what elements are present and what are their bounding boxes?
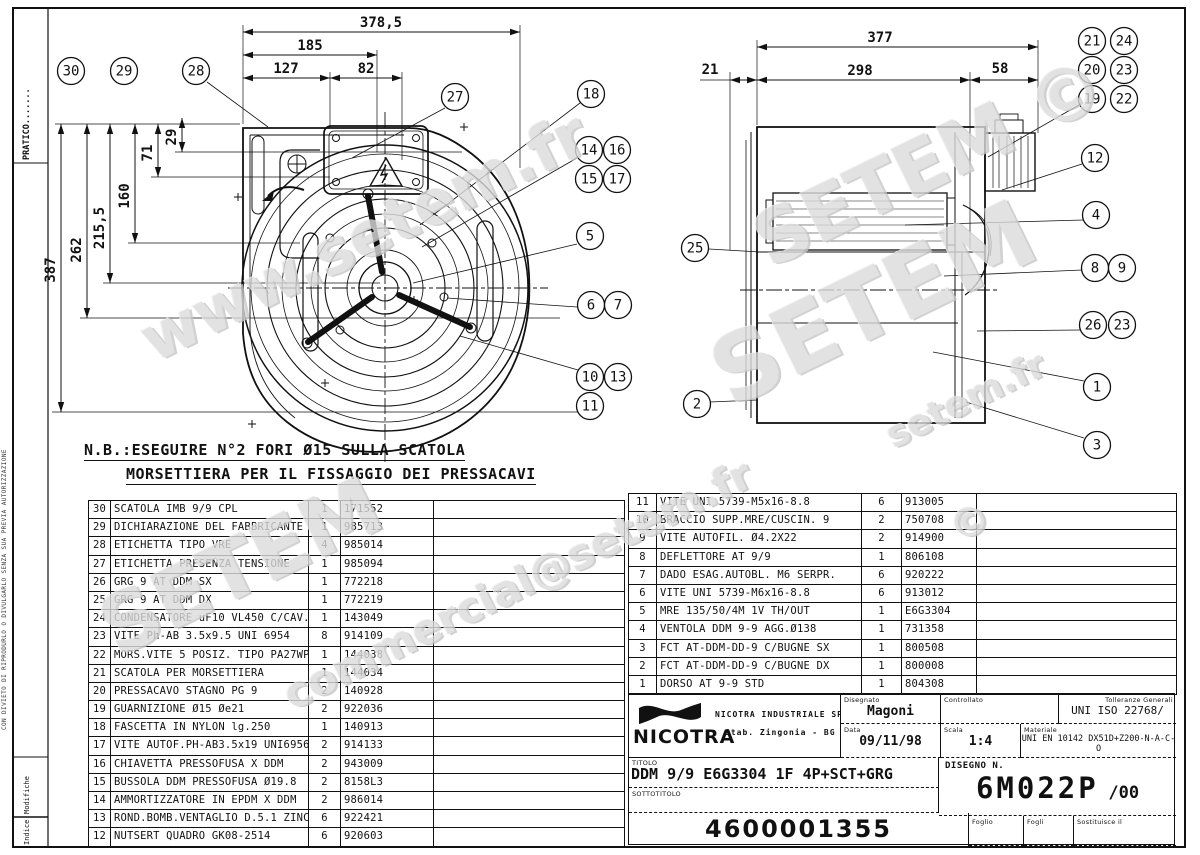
indice-label: Indice [23,820,31,845]
part-code-cell: 772218 [341,574,434,591]
part-notes-cell [434,610,624,627]
part-number-cell: 12 [89,828,111,846]
part-notes-cell [977,567,1176,584]
part-qty-cell: 2 [309,701,341,718]
part-notes-cell [977,549,1176,566]
part-code-cell: 772219 [341,592,434,609]
part-code-cell: 800008 [902,658,977,675]
table-row: 11 VITE UNI 5739-M5x16-8.8 6 913005 [629,494,1176,512]
part-number-cell: 18 [89,719,111,736]
part-notes-cell [977,658,1176,675]
table-row: 28 ETICHETTA TIPO VRE 4 985014 [89,537,624,555]
part-description-cell: ETICHETTA PRESENZA TENSIONE [111,556,309,573]
balloon-19: 19 [1084,92,1101,108]
part-notes-cell [434,519,624,536]
part-qty-cell: 1 [862,658,902,675]
part-notes-cell [434,501,624,518]
part-notes-cell [977,603,1176,620]
part-code-cell: 8158L3 [341,774,434,791]
terminal-box [324,126,428,194]
materiale-cell: Materiale UNI EN 10142 DX51D+Z200-N-A-C-… [1021,724,1176,758]
part-number-cell: 5 [629,603,657,620]
part-number-cell: 25 [89,592,111,609]
part-number-cell: 28 [89,537,111,554]
part-notes-cell [434,683,624,700]
dim-377: 377 [867,30,892,46]
part-qty-cell: 1 [309,647,341,664]
balloon-6: 6 [587,298,595,314]
part-code-cell: 143049 [341,610,434,627]
table-row: 22 MORS.VITE 5 POSIZ. TIPO PA27WP 1 1440… [89,647,624,665]
table-row: 27 ETICHETTA PRESENZA TENSIONE 1 985094 [89,556,624,574]
balloon-29: 29 [116,64,133,80]
part-number-cell: 26 [89,574,111,591]
part-code-cell: 920603 [341,828,434,846]
note-line-1: N.B.:ESEGUIRE N°2 FORI Ø15 SULLA SCATOLA [84,441,465,461]
balloon-10: 10 [582,370,599,386]
part-description-cell: FCT AT-DDM-DD-9 C/BUGNE SX [657,640,862,657]
disegno-value: 6M022P [976,771,1099,805]
disegnato-label: Disegnato [841,694,940,704]
part-code-cell: 985713 [341,519,434,536]
part-notes-cell [977,585,1176,602]
balloon-15: 15 [581,172,598,188]
sostituisce-cell: Sostituisce il [1074,816,1176,846]
nicotra-flag-icon [639,702,701,726]
balloon-21: 21 [1084,34,1101,50]
dim-262: 262 [69,237,85,262]
part-description-cell: FASCETTA IN NYLON lg.250 [111,719,309,736]
dim-160: 160 [117,183,133,208]
dim-29: 29 [164,129,180,146]
company-full-name: NICOTRA INDUSTRIALE SPA [715,710,841,719]
balloon-17: 17 [609,172,626,188]
part-notes-cell [434,792,624,809]
table-row: 10 BRACCIO SUPP.MRE/CUSCIN. 9 2 750708 [629,512,1176,530]
part-description-cell: ETICHETTA TIPO VRE [111,537,309,554]
dim-298: 298 [847,63,872,79]
table-row: 12 NUTSERT QUADRO GK08-2514 6 920603 [89,828,624,846]
part-number-cell: 21 [89,665,111,682]
disegnato-value: Magoni [841,704,940,719]
controllato-cell: Controllato [941,694,1059,724]
balloon-2: 2 [693,397,701,413]
balloon-3: 3 [1093,438,1101,454]
part-notes-cell [434,665,624,682]
earth-symbol-icon [288,155,306,173]
table-row: 13 ROND.BOMB.VENTAGLIO D.5.1 ZINC 6 9224… [89,810,624,828]
part-number-cell: 15 [89,774,111,791]
part-number-value: 4600001355 [629,813,968,843]
part-notes-cell [434,628,624,645]
part-qty-cell: 6 [862,494,902,511]
part-notes-cell [434,828,624,846]
part-number-cell: 14 [89,792,111,809]
scala-label: Scala [941,724,1020,734]
table-row: 30 SCATOLA IMB 9/9 CPL 1 171552 [89,501,624,519]
disegnato-cell: Disegnato Magoni [841,694,941,724]
part-description-cell: GRG 9 AT DDM DX [111,592,309,609]
part-qty-cell: 1 [309,592,341,609]
table-row: 6 VITE UNI 5739-M6x16-8.8 6 913012 [629,585,1176,603]
table-row: 24 CONDENSATORE uF10 VL450 C/CAV. 1 1430… [89,610,624,628]
title-block: NICOTRA NICOTRA INDUSTRIALE SPA Stab. Zi… [628,693,1175,845]
part-number-cell: 13 [89,810,111,827]
part-qty-cell: 2 [862,512,902,529]
part-qty-cell: 1 [309,665,341,682]
tolleranze-value: UNI ISO 22768/ [1059,704,1176,717]
dim-71: 71 [140,145,156,162]
part-notes-cell [977,530,1176,547]
materiale-value: UNI EN 10142 DX51D+Z200-N-A-C-O [1021,734,1176,754]
dim-387: 387 [43,257,59,282]
balloon-1: 1 [1093,380,1101,396]
part-notes-cell [434,737,624,754]
dim-21: 21 [702,62,719,78]
balloon-23b: 23 [1114,318,1131,334]
balloon-18: 18 [583,87,600,103]
table-row: 14 AMMORTIZZATORE IN EPDM X DDM 2 986014 [89,792,624,810]
part-description-cell: FCT AT-DDM-DD-9 C/BUGNE DX [657,658,862,675]
foglio-label: Foglio [969,816,1023,826]
motor-spokes [308,196,470,342]
part-description-cell: BUSSOLA DDM PRESSOFUSA Ø19.8 [111,774,309,791]
sottotitolo-cell: SOTTOTITOLO [629,788,939,813]
part-description-cell: VITE UNI 5739-M5x16-8.8 [657,494,862,511]
balloon-8: 8 [1091,261,1099,277]
part-code-cell: 913005 [902,494,977,511]
table-row: 4 VENTOLA DDM 9-9 AGG.Ø138 1 731358 [629,621,1176,639]
part-qty-cell: 1 [309,501,341,518]
part-notes-cell [434,719,624,736]
part-description-cell: ROND.BOMB.VENTAGLIO D.5.1 ZINC [111,810,309,827]
balloon-20: 20 [1084,63,1101,79]
part-description-cell: PRESSACAVO STAGNO PG 9 [111,683,309,700]
balloon-14: 14 [581,143,598,159]
table-row: 19 GUARNIZIONE Ø15 Øe21 2 922036 [89,701,624,719]
tolleranze-cell: Tolleranze Generali UNI ISO 22768/ [1059,694,1176,724]
part-number-cell: 22 [89,647,111,664]
sottotitolo-label: SOTTOTITOLO [629,788,938,798]
part-notes-cell [977,676,1176,694]
part-description-cell: VITE AUTOF.PH-AB3.5x19 UNI6956 [111,737,309,754]
part-code-cell: 943009 [341,756,434,773]
part-notes-cell [977,640,1176,657]
part-number-cell: 6 [629,585,657,602]
part-code-cell: 171552 [341,501,434,518]
parts-table-right: 11 VITE UNI 5739-M5x16-8.8 6 913005 10 B… [628,493,1177,695]
table-row: 8 DEFLETTORE AT 9/9 1 806108 [629,549,1176,567]
part-qty-cell: 1 [862,676,902,694]
part-qty-cell: 1 [309,610,341,627]
part-description-cell: CONDENSATORE uF10 VL450 C/CAV. [111,610,309,627]
disegno-revision: /00 [1108,783,1139,803]
balloon-12: 12 [1087,151,1104,167]
company-logo-text: NICOTRA [633,726,735,748]
part-description-cell: VENTOLA DDM 9-9 AGG.Ø138 [657,621,862,638]
part-qty-cell: 1 [862,603,902,620]
part-code-cell: 144038 [341,647,434,664]
data-value: 09/11/98 [841,734,940,749]
table-row: 15 BUSSOLA DDM PRESSOFUSA Ø19.8 2 8158L3 [89,774,624,792]
part-number-cell: 11 [629,494,657,511]
fogli-cell: Fogli [1024,816,1074,846]
part-notes-cell [434,701,624,718]
part-notes-cell [434,647,624,664]
part-description-cell: DICHIARAZIONE DEL FABBRICANTE [111,519,309,536]
part-notes-cell [977,494,1176,511]
part-code-cell: 800508 [902,640,977,657]
part-code-cell: 920222 [902,567,977,584]
titolo-value: DDM 9/9 E6G3304 1F 4P+SCT+GRG [629,765,938,783]
dim-127: 127 [273,61,298,77]
part-code-cell: 913012 [902,585,977,602]
table-row: 26 GRG 9 AT DDM SX 1 772218 [89,574,624,592]
part-qty-cell: 2 [862,530,902,547]
part-qty-cell: 2 [309,737,341,754]
part-qty-cell: 1 [309,719,341,736]
part-description-cell: MORS.VITE 5 POSIZ. TIPO PA27WP [111,647,309,664]
balloon-9: 9 [1118,261,1126,277]
balloon-28: 28 [188,64,205,80]
part-notes-cell [977,512,1176,529]
warning-triangle-icon [370,158,402,186]
balloon-26: 26 [1085,318,1102,334]
disegno-label: DISEGNO N. [939,758,1176,771]
table-row: 16 CHIAVETTA PRESSOFUSA X DDM 2 943009 [89,756,624,774]
company-plant: Stab. Zingonia - BG [725,728,836,737]
part-description-cell: GUARNIZIONE Ø15 Øe21 [111,701,309,718]
dim-378-5: 378,5 [360,15,402,31]
rotation-arrow-icon [262,187,304,201]
part-code-cell: 985014 [341,537,434,554]
part-number-cell: 9 [629,530,657,547]
scala-cell: Scala 1:4 [941,724,1021,758]
dim-58: 58 [992,61,1009,77]
part-qty-cell: 1 [862,549,902,566]
modifiche-label: Modifiche [23,762,31,814]
part-code-cell: E6G3304 [902,603,977,620]
balloon-23a: 23 [1116,63,1133,79]
part-description-cell: DORSO AT 9-9 STD [657,676,862,694]
part-number-cell: 17 [89,737,111,754]
balloon-24: 24 [1116,34,1133,50]
part-code-cell: 922036 [341,701,434,718]
part-code-cell: 140913 [341,719,434,736]
part-qty-cell: 1 [309,556,341,573]
pratico-margin-text: PRATICO....... [22,30,32,160]
company-logo-cell: NICOTRA NICOTRA INDUSTRIALE SPA Stab. Zi… [629,694,841,758]
part-qty-cell: 2 [309,792,341,809]
part-number-cell: 4 [629,621,657,638]
table-row: 17 VITE AUTOF.PH-AB3.5x19 UNI6956 2 9141… [89,737,624,755]
disegno-cell: DISEGNO N. 6M022P /00 [939,758,1176,816]
part-qty-cell: 2 [309,774,341,791]
part-qty-cell: 2 [309,756,341,773]
part-notes-cell [434,756,624,773]
note-line-2: MORSETTIERA PER IL FISSAGGIO DEI PRESSAC… [126,465,536,485]
dim-185: 185 [297,38,322,54]
materiale-label: Materiale [1021,724,1176,734]
part-code-cell: 804308 [902,676,977,694]
part-code-cell: 986014 [341,792,434,809]
part-code-cell: 914109 [341,628,434,645]
data-cell: Data 09/11/98 [841,724,941,758]
part-qty-cell: 1 [309,574,341,591]
part-number-cell: 16 [89,756,111,773]
titolo-cell: TITOLO DDM 9/9 E6G3304 1F 4P+SCT+GRG [629,758,939,788]
part-description-cell: VITE AUTOFIL. Ø4.2X22 [657,530,862,547]
foglio-cell: Foglio [969,816,1024,846]
part-number-cell: 29 [89,519,111,536]
part-notes-cell [434,810,624,827]
table-row: 9 VITE AUTOFIL. Ø4.2X22 2 914900 [629,530,1176,548]
part-code-cell: 140928 [341,683,434,700]
part-qty-cell: 1 [309,519,341,536]
part-number-cell: 27 [89,556,111,573]
part-number-cell: 20 [89,683,111,700]
part-notes-cell [977,621,1176,638]
table-row: 25 GRG 9 AT DDM DX 1 772219 [89,592,624,610]
tolleranze-label: Tolleranze Generali [1059,694,1176,704]
fogli-label: Fogli [1024,816,1073,826]
part-description-cell: CHIAVETTA PRESSOFUSA X DDM [111,756,309,773]
part-code-cell: 731358 [902,621,977,638]
part-qty-cell: 4 [309,537,341,554]
part-description-cell: GRG 9 AT DDM SX [111,574,309,591]
part-number-cell: 8 [629,549,657,566]
part-qty-cell: 6 [862,567,902,584]
table-row: 20 PRESSACAVO STAGNO PG 9 2 140928 [89,683,624,701]
engineering-drawing-sheet: 378,5 185 127 82 387 262 215,5 160 71 29 [0,0,1200,855]
side-view [740,114,1035,423]
table-row: 18 FASCETTA IN NYLON lg.250 1 140913 [89,719,624,737]
table-row: 3 FCT AT-DDM-DD-9 C/BUGNE SX 1 800508 [629,640,1176,658]
table-row: 21 SCATOLA PER MORSETTIERA 1 144034 [89,665,624,683]
part-notes-cell [434,774,624,791]
part-number-cell: 1 [629,676,657,694]
part-qty-cell: 6 [862,585,902,602]
balloon-5: 5 [586,229,594,245]
part-number-cell: 3 [629,640,657,657]
sostituisce-label: Sostituisce il [1074,816,1176,826]
part-description-cell: VITE UNI 5739-M6x16-8.8 [657,585,862,602]
part-code-cell: 914133 [341,737,434,754]
part-description-cell: MRE 135/50/4M 1V TH/OUT [657,603,862,620]
drawing-note: N.B.:ESEGUIRE N°2 FORI Ø15 SULLA SCATOLA… [84,438,536,486]
part-notes-cell [434,574,624,591]
part-notes-cell [434,556,624,573]
part-notes-cell [434,537,624,554]
table-row: 29 DICHIARAZIONE DEL FABBRICANTE 1 98571… [89,519,624,537]
side-box [985,114,1035,191]
data-label: Data [841,724,940,734]
table-row: 5 MRE 135/50/4M 1V TH/OUT 1 E6G3304 [629,603,1176,621]
part-code-cell: 922421 [341,810,434,827]
balloon-13: 13 [610,370,627,386]
part-notes-cell [434,592,624,609]
scala-value: 1:4 [941,734,1020,749]
part-number-cell: 7 [629,567,657,584]
table-row: 23 VITE Ph-AB 3.5x9.5 UNI 6954 8 914109 [89,628,624,646]
part-code-cell: 144034 [341,665,434,682]
balloon-4: 4 [1092,208,1100,224]
part-description-cell: DEFLETTORE AT 9/9 [657,549,862,566]
part-number-cell: 19 [89,701,111,718]
balloon-7: 7 [614,298,622,314]
table-row: 2 FCT AT-DDM-DD-9 C/BUGNE DX 1 800008 [629,658,1176,676]
dim-215-5: 215,5 [92,207,108,249]
parts-table-left: 30 SCATOLA IMB 9/9 CPL 1 171552 29 DICHI… [88,500,625,848]
motor-cylinder [766,193,955,250]
part-number-cell: 2 [629,658,657,675]
part-qty-cell: 6 [309,810,341,827]
copyright-margin-text: CON DIVIETO DI RIPRODURLO O DIVULGARLO S… [1,260,8,730]
part-number-cell: 10 [629,512,657,529]
part-qty-cell: 8 [309,628,341,645]
dim-82: 82 [358,61,375,77]
part-code-cell: 985094 [341,556,434,573]
part-qty-cell: 1 [862,640,902,657]
part-number-cell: 23 [89,628,111,645]
part-description-cell: AMMORTIZZATORE IN EPDM X DDM [111,792,309,809]
balloon-27: 27 [447,90,464,106]
balloon-30: 30 [63,64,80,80]
part-description-cell: SCATOLA PER MORSETTIERA [111,665,309,682]
part-description-cell: VITE Ph-AB 3.5x9.5 UNI 6954 [111,628,309,645]
part-code-cell: 806108 [902,549,977,566]
part-number-cell: 30 [89,501,111,518]
balloon-11: 11 [582,399,599,415]
part-description-cell: BRACCIO SUPP.MRE/CUSCIN. 9 [657,512,862,529]
part-number-cell: 24 [89,610,111,627]
table-row: 7 DADO ESAG.AUTOBL. M6 SERPR. 6 920222 [629,567,1176,585]
part-code-cell: 914900 [902,530,977,547]
balloon-16: 16 [609,143,626,159]
part-qty-cell: 1 [862,621,902,638]
side-dimension-labels: 377 298 58 21 [702,30,1009,79]
table-row: 1 DORSO AT 9-9 STD 1 804308 [629,676,1176,694]
part-number-cell: 4600001355 [629,813,969,846]
part-code-cell: 750708 [902,512,977,529]
part-description-cell: NUTSERT QUADRO GK08-2514 [111,828,309,846]
part-description-cell: SCATOLA IMB 9/9 CPL [111,501,309,518]
part-qty-cell: 2 [309,683,341,700]
part-description-cell: DADO ESAG.AUTOBL. M6 SERPR. [657,567,862,584]
controllato-label: Controllato [941,694,1058,704]
balloon-25: 25 [687,241,704,257]
part-qty-cell: 6 [309,828,341,846]
balloon-22: 22 [1116,92,1133,108]
